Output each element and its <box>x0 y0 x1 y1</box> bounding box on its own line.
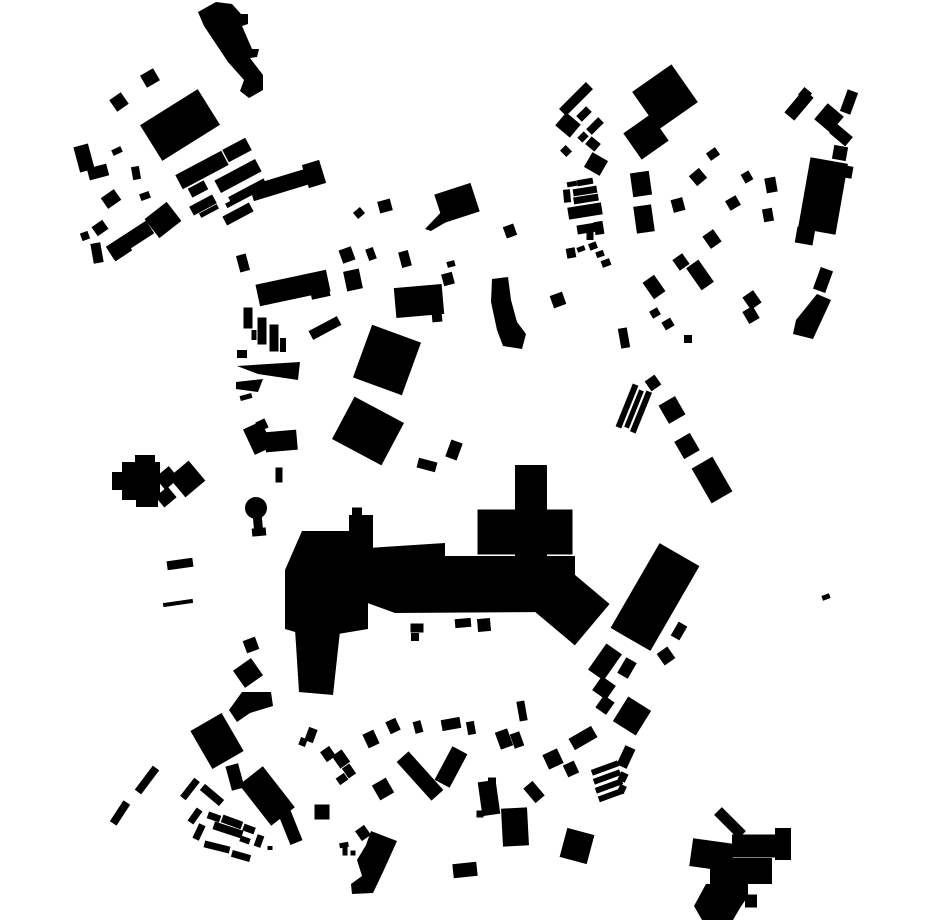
building-footprint <box>588 643 622 680</box>
building-footprint <box>566 247 577 258</box>
building-footprint <box>242 824 256 835</box>
building-footprint <box>452 862 477 878</box>
building-footprint <box>503 223 517 238</box>
building-footprint <box>239 835 250 844</box>
building-footprint <box>140 89 220 161</box>
building-footprint <box>315 805 330 820</box>
building-footprint <box>204 840 231 853</box>
building-footprint <box>435 746 468 788</box>
building-footprint <box>576 245 585 252</box>
building-footprint <box>92 220 109 236</box>
building-footprint <box>611 543 700 651</box>
building-footprint <box>270 325 279 352</box>
building-footprint <box>584 152 608 176</box>
building-footprint <box>425 206 453 231</box>
building-footprint <box>671 197 686 213</box>
building-footprint <box>446 260 455 268</box>
building-footprint <box>385 718 400 734</box>
building-footprint <box>477 811 484 818</box>
building-footprint <box>550 292 567 309</box>
building-footprint <box>645 375 662 392</box>
building-footprint <box>840 89 858 114</box>
building-footprint <box>351 851 356 856</box>
building-footprint <box>563 761 579 778</box>
building-footprint <box>236 379 263 392</box>
building-footprint <box>411 624 424 633</box>
building-footprint <box>725 195 741 211</box>
building-footprint <box>353 325 421 395</box>
building-footprint <box>478 510 573 555</box>
building-footprint <box>595 695 614 715</box>
building-footprint <box>122 462 160 500</box>
building-footprint <box>243 637 260 654</box>
building-footprint <box>762 208 774 223</box>
building-footprint <box>617 657 636 679</box>
building-footprint <box>586 117 604 135</box>
building-footprint <box>398 250 412 268</box>
building-footprint <box>798 157 848 235</box>
building-footprint <box>276 468 283 483</box>
building-footprint <box>832 145 848 161</box>
building-footprint <box>455 618 472 628</box>
building-footprint <box>764 177 777 194</box>
building-footprint <box>111 146 123 156</box>
building-footprint <box>109 92 128 111</box>
building-footprint <box>254 834 265 848</box>
building-footprint <box>252 527 267 536</box>
building-footprint <box>198 2 263 98</box>
building-footprint <box>343 847 348 856</box>
building-footprint <box>280 338 286 352</box>
building-footprint <box>441 717 462 731</box>
building-footprint <box>190 713 243 769</box>
building-footprint <box>477 618 491 632</box>
building-footprint <box>710 858 772 884</box>
building-footprint <box>432 312 443 323</box>
building-footprint <box>222 138 252 163</box>
building-footprint <box>244 308 253 329</box>
building-footprint <box>229 692 273 722</box>
building-footprint <box>445 439 462 460</box>
building-footprint <box>793 294 831 339</box>
building-footprint <box>411 633 419 641</box>
building-footprint <box>587 232 594 240</box>
building-footprint <box>659 396 686 424</box>
building-footprint <box>595 250 605 258</box>
building-footprint <box>630 171 652 197</box>
building-footprint <box>90 242 103 263</box>
building-footprint <box>264 430 298 453</box>
building-footprint <box>110 800 130 825</box>
building-footprint <box>413 720 424 734</box>
building-footprint <box>417 458 438 473</box>
building-footprint <box>649 307 661 318</box>
building-footprint <box>613 697 651 736</box>
building-footprint <box>131 166 141 180</box>
building-footprint <box>275 803 302 845</box>
building-footprint <box>192 823 205 840</box>
building-footprint <box>353 207 365 219</box>
building-footprint <box>80 231 90 241</box>
building-footprint <box>821 593 830 600</box>
building-footprint <box>258 318 267 345</box>
building-footprint <box>542 748 563 769</box>
building-footprint <box>601 258 612 268</box>
building-footprint <box>362 730 379 749</box>
building-footprint <box>135 455 155 467</box>
building-footprint <box>742 306 759 324</box>
building-footprint <box>577 131 588 142</box>
building-footprint <box>560 828 595 864</box>
building-footprint <box>795 227 816 246</box>
building-footprint <box>523 781 544 803</box>
building-footprint <box>686 260 714 291</box>
building-footprint <box>352 508 362 517</box>
building-footprint <box>588 241 598 250</box>
building-footprint <box>671 622 688 641</box>
building-footprint <box>320 746 336 762</box>
building-footprint <box>309 316 342 340</box>
building-footprint <box>231 850 251 862</box>
building-footprint <box>338 246 355 264</box>
building-footprint <box>163 599 193 607</box>
building-footprint <box>207 811 222 822</box>
building-footprint <box>684 335 692 343</box>
building-footprint <box>188 807 203 824</box>
building-footprint <box>140 68 160 88</box>
building-footprint <box>240 393 253 401</box>
building-footprint <box>632 64 698 129</box>
building-footprint <box>136 497 158 507</box>
building-footprint <box>510 731 525 749</box>
building-footprint <box>516 700 527 721</box>
building-footprint <box>245 497 267 519</box>
building-footprint <box>200 784 224 806</box>
building-footprint <box>674 433 700 459</box>
building-footprint <box>237 362 300 380</box>
building-footprint <box>585 136 601 151</box>
building-footprint <box>139 191 151 201</box>
building-footprint <box>594 221 605 235</box>
building-footprint <box>643 275 666 299</box>
figure-ground-map <box>0 0 930 924</box>
building-footprint <box>252 330 257 340</box>
building-footprint <box>466 721 476 735</box>
building-footprint <box>706 147 720 161</box>
building-footprint <box>332 397 404 466</box>
map-canvas <box>0 0 930 924</box>
building-footprint <box>661 318 674 331</box>
building-footprint <box>714 807 746 839</box>
building-footprint <box>702 229 721 249</box>
building-footprint <box>618 327 630 348</box>
building-footprint <box>576 106 592 122</box>
building-footprint <box>568 726 597 750</box>
building-footprint <box>351 831 397 894</box>
building-footprint <box>372 778 394 801</box>
building-footprint <box>560 145 572 157</box>
building-footprint <box>732 835 776 858</box>
building-footprint <box>694 884 748 920</box>
building-footprint <box>268 846 273 850</box>
building-footprint <box>495 728 513 749</box>
building-footprint <box>741 170 754 183</box>
building-footprint <box>567 202 602 219</box>
building-footprint <box>365 247 377 261</box>
building-footprint <box>295 629 340 695</box>
building-footprint <box>567 181 578 188</box>
building-footprint <box>692 457 733 504</box>
building-footprint <box>237 350 247 358</box>
building-footprint <box>397 751 444 800</box>
building-footprint <box>167 558 194 571</box>
building-footprint <box>180 778 200 800</box>
building-footprint <box>491 277 526 349</box>
building-footprint <box>501 807 529 846</box>
building-footprint <box>689 168 707 186</box>
building-footprint <box>112 472 124 490</box>
building-footprint <box>813 267 833 293</box>
building-footprint <box>377 199 393 214</box>
building-footprint <box>577 178 594 187</box>
building-footprint <box>745 895 757 908</box>
building-footprint <box>563 189 571 203</box>
building-footprint <box>633 204 655 233</box>
building-footprint <box>441 272 455 286</box>
building-footprint <box>657 647 676 666</box>
building-footprint <box>488 778 496 785</box>
building-footprint <box>775 828 791 860</box>
building-footprint <box>236 253 250 272</box>
building-footprint <box>349 515 373 553</box>
building-footprint <box>135 766 159 795</box>
building-footprint <box>343 269 363 292</box>
building-footprint <box>233 658 263 688</box>
building-footprint <box>617 745 636 769</box>
building-footprint <box>101 189 122 209</box>
